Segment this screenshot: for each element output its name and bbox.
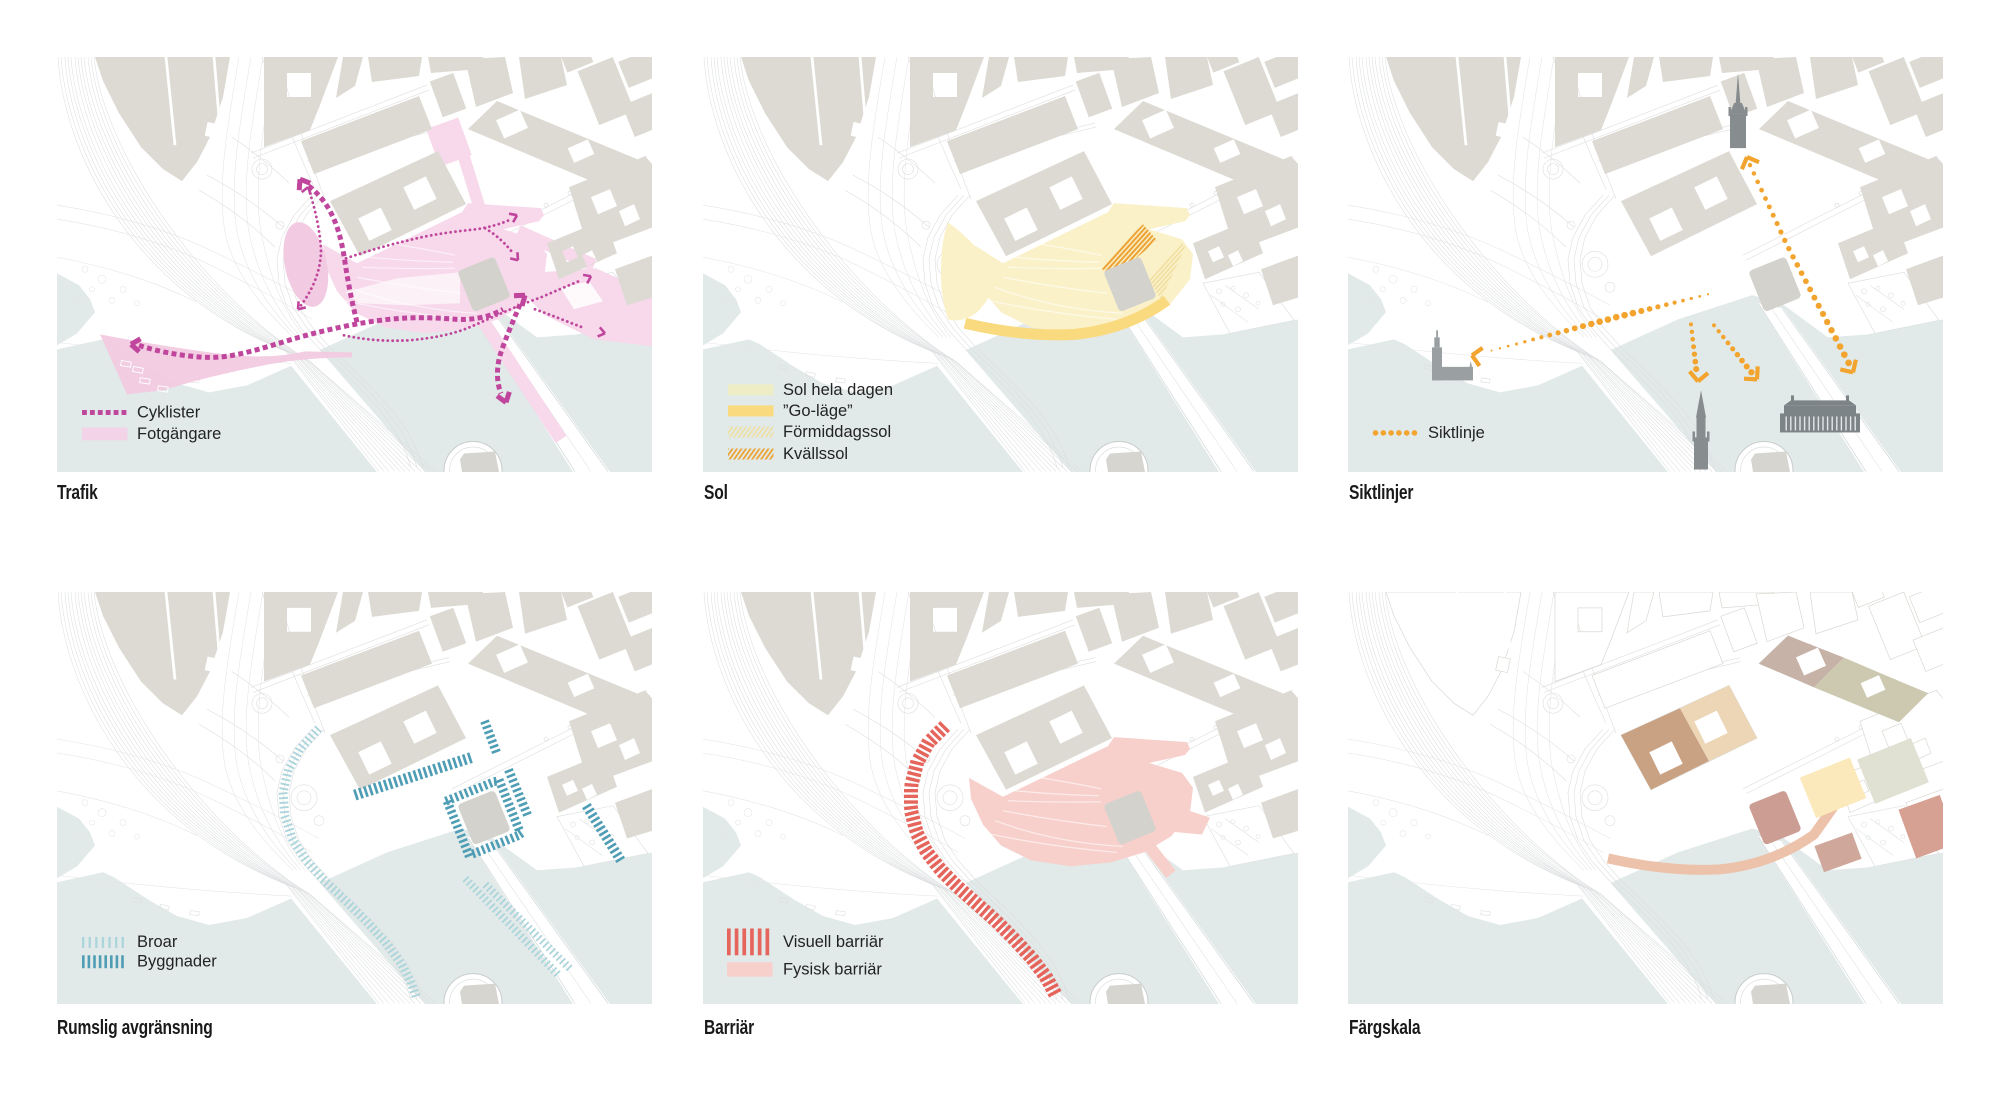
svg-text:Siktlinje: Siktlinje bbox=[1428, 424, 1485, 442]
svg-text:Byggnader: Byggnader bbox=[137, 953, 217, 971]
svg-text:Sol hela dagen: Sol hela dagen bbox=[783, 381, 893, 399]
svg-text:Cyklister: Cyklister bbox=[137, 403, 201, 421]
svg-text:Broar: Broar bbox=[137, 933, 178, 951]
svg-text:”Go-läge”: ”Go-läge” bbox=[783, 402, 853, 420]
svg-text:Fysisk barriär: Fysisk barriär bbox=[783, 961, 882, 979]
svg-text:Fotgängare: Fotgängare bbox=[137, 425, 221, 443]
svg-text:Förmiddagssol: Förmiddagssol bbox=[783, 423, 891, 441]
svg-text:Kvällssol: Kvällssol bbox=[783, 445, 848, 463]
svg-text:Visuell barriär: Visuell barriär bbox=[783, 933, 884, 951]
